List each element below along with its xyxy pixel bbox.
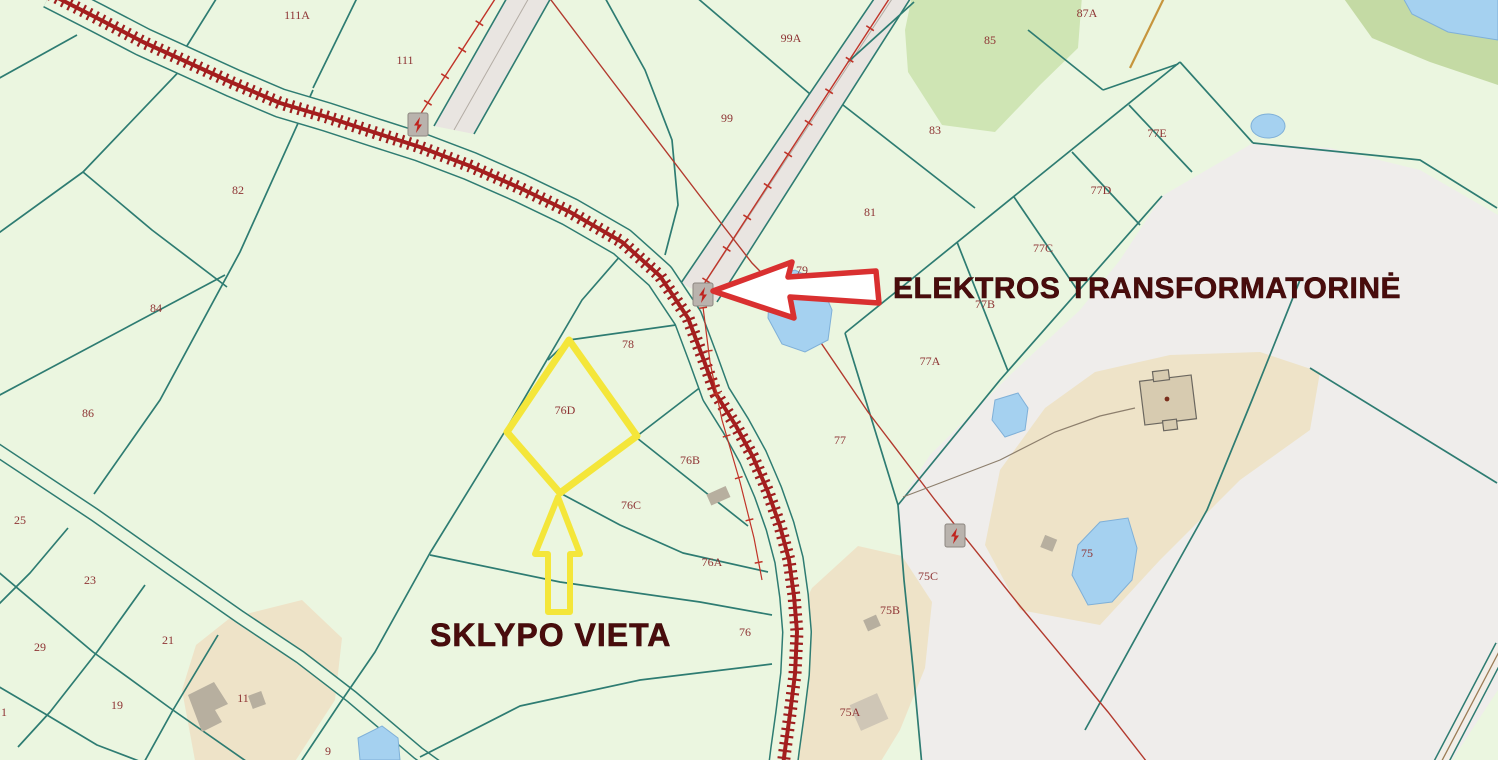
- parcel-label-76A: 76A: [702, 555, 723, 569]
- parcel-label-29: 29: [34, 640, 46, 654]
- parcel-label-85: 85: [984, 33, 996, 47]
- parcel-label-77B: 77B: [975, 297, 995, 311]
- parcel-label-75C: 75C: [918, 569, 938, 583]
- parcel-label-75A: 75A: [840, 705, 861, 719]
- parcel-label-75: 75: [1081, 546, 1093, 560]
- parcel-label-81: 81: [864, 205, 876, 219]
- parcel-label-19: 19: [111, 698, 123, 712]
- parcel-label-77A: 77A: [920, 354, 941, 368]
- transformer-icon: [693, 283, 713, 306]
- transformer-icon: [408, 113, 428, 136]
- parcel-label-25: 25: [14, 513, 26, 527]
- parcel-label-21: 21: [162, 633, 174, 647]
- cadastral-map: ELEKTROS TRANSFORMATORINĖ SKLYPO VIETA 1…: [0, 0, 1498, 760]
- transformer-icon: [945, 524, 965, 547]
- parcel-label-1: 1: [1, 705, 7, 719]
- parcel-label-76D: 76D: [555, 403, 576, 417]
- parcel-label-77: 77: [834, 433, 846, 447]
- parcel-label-9: 9: [325, 744, 331, 758]
- parcel-label-111A: 111A: [284, 8, 310, 22]
- parcel-label-77E: 77E: [1147, 126, 1166, 140]
- parcel-label-11: 11: [237, 691, 249, 705]
- parcel-label-111: 111: [396, 53, 413, 67]
- parcel-label-77C: 77C: [1033, 241, 1053, 255]
- parcel-label-76C: 76C: [621, 498, 641, 512]
- pond-topright: [1251, 114, 1285, 138]
- map-canvas: ELEKTROS TRANSFORMATORINĖ SKLYPO VIETA 1…: [0, 0, 1498, 760]
- transformer-annotation-text: ELEKTROS TRANSFORMATORINĖ: [893, 272, 1401, 305]
- parcel-label-77D: 77D: [1091, 183, 1112, 197]
- parcel-label-75B: 75B: [880, 603, 900, 617]
- plot-annotation-text: SKLYPO VIETA: [430, 617, 671, 653]
- parcel-label-99: 99: [721, 111, 733, 125]
- parcel-label-99A: 99A: [781, 31, 802, 45]
- parcel-label-86: 86: [82, 406, 94, 420]
- parcel-label-83: 83: [929, 123, 941, 137]
- parcel-label-78: 78: [622, 337, 634, 351]
- parcel-label-76: 76: [739, 625, 751, 639]
- parcel-label-87A: 87A: [1077, 6, 1098, 20]
- parcel-label-79: 79: [796, 263, 808, 277]
- parcel-label-23: 23: [84, 573, 96, 587]
- parcel-label-84: 84: [150, 301, 162, 315]
- parcel-label-76B: 76B: [680, 453, 700, 467]
- parcel-label-82: 82: [232, 183, 244, 197]
